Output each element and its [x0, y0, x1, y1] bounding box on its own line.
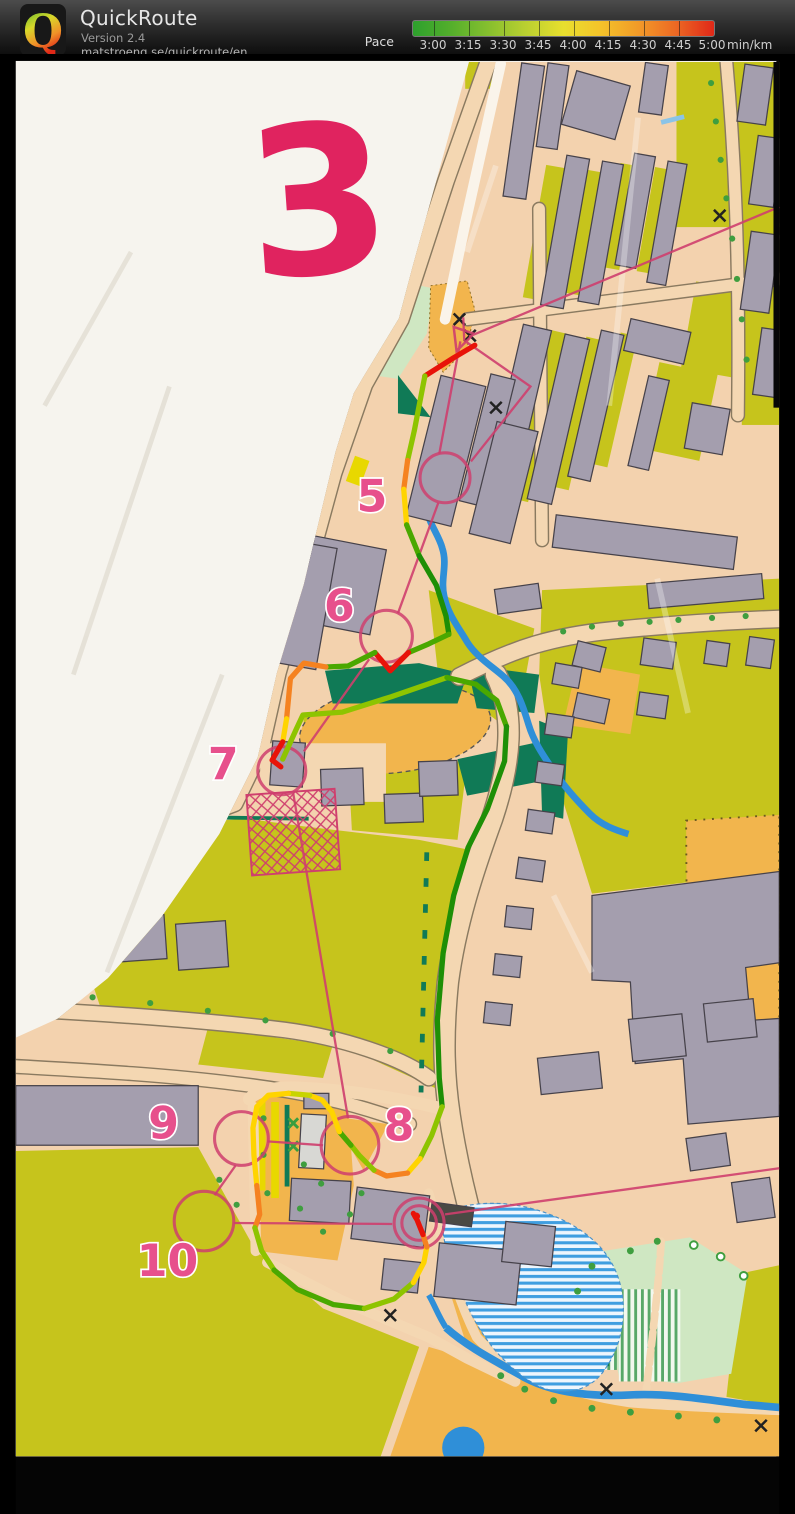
out-of-bounds-area — [246, 789, 340, 876]
app-title: QuickRoute — [80, 6, 198, 30]
scale-tick-label: 4:00 — [560, 38, 587, 52]
scan-edge — [773, 62, 779, 408]
scale-tick-label: 5:00 — [699, 38, 726, 52]
control-number-10: 10 — [137, 1236, 198, 1287]
orienteering-map: 5 6 7 8 9 10 3 — [0, 60, 795, 1514]
scale-tick-label: 3:45 — [525, 38, 552, 52]
pace-color-scale — [412, 20, 715, 37]
pace-unit-label: min/km — [727, 38, 772, 52]
control-number-7: 7 — [208, 739, 239, 790]
map-page-number: 3 — [238, 76, 398, 326]
control-number-5: 5 — [357, 471, 388, 522]
scale-tick-label: 3:15 — [455, 38, 482, 52]
quickroute-window: Q QuickRoute Version 2.4 matstroeng.se/q… — [0, 0, 795, 1514]
scale-tick-label: 4:45 — [665, 38, 692, 52]
scale-tick-label: 3:00 — [420, 38, 447, 52]
pace-scale-labels: 3:00 3:15 3:30 3:45 4:00 4:15 4:30 4:45 … — [0, 38, 795, 52]
header-bar: Q QuickRoute Version 2.4 matstroeng.se/q… — [0, 0, 795, 60]
scale-tick-label: 4:15 — [595, 38, 622, 52]
scale-tick-label: 4:30 — [630, 38, 657, 52]
control-number-6: 6 — [324, 581, 355, 632]
map-canvas[interactable]: 5 6 7 8 9 10 3 — [0, 60, 795, 1514]
scale-tick-label: 3:30 — [490, 38, 517, 52]
control-number-8: 8 — [384, 1100, 415, 1151]
control-number-9: 9 — [148, 1098, 179, 1149]
